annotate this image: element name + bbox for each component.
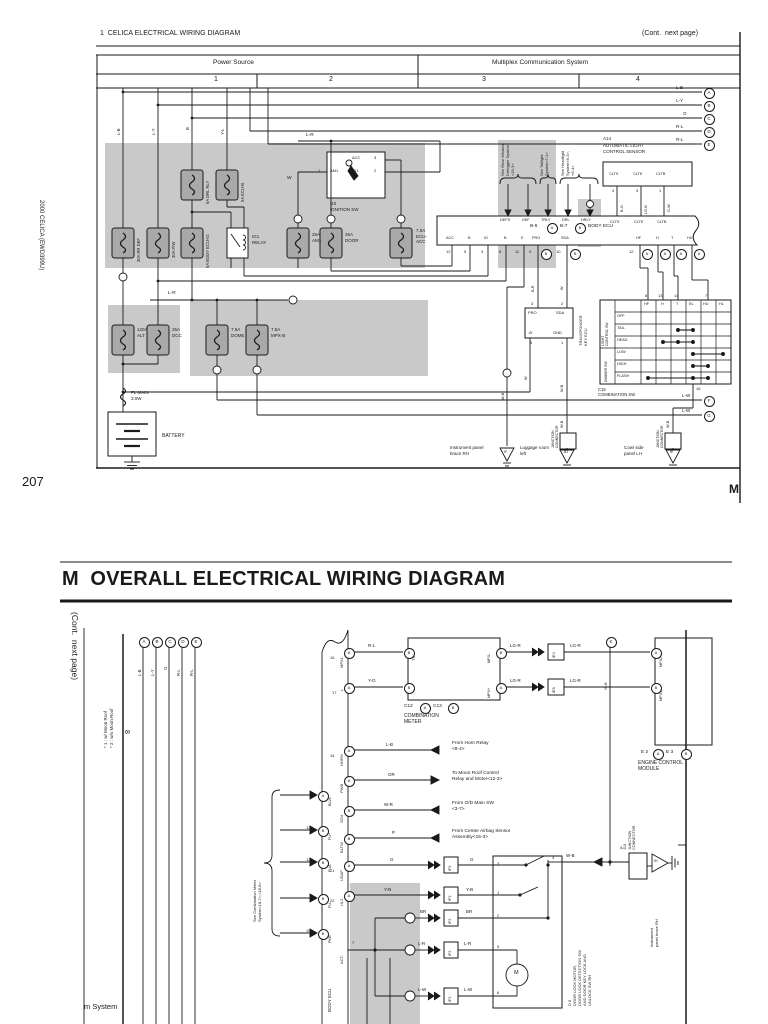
connector-letter: A <box>344 891 355 902</box>
pin: 2 <box>310 790 312 795</box>
margin-fragment: m System <box>84 1002 117 1011</box>
body-ecu-label: BODY ECU <box>327 989 333 1012</box>
see-note: See Combination Meter System<18-7>,<18-8… <box>252 880 262 922</box>
terminal: FU- <box>328 902 333 908</box>
connector-a: A <box>139 637 150 648</box>
ecm-label: ENGINE CONTROL MODULE <box>638 760 683 773</box>
wire-label: BR <box>466 909 472 915</box>
connector-letter: A <box>344 683 355 694</box>
junction-code: IF2 <box>448 896 453 902</box>
ground-label: Instrument panel brace RH <box>649 919 659 947</box>
terminal: PWB <box>339 784 344 793</box>
wire-label: R-L <box>189 669 194 676</box>
junction-label: J10 JUNCTION CONNECTOR <box>623 826 637 850</box>
terminal: MPX+ <box>487 688 492 698</box>
connector-e: E <box>191 637 202 648</box>
bottom-sheet-labels: (Cont. next page)* 1 : w/ Moon Roof * 2 … <box>0 0 768 1024</box>
cont-next-page: (Cont. next page) <box>69 612 80 680</box>
junction-code: IF2 <box>448 919 453 925</box>
connector-k: K <box>606 637 617 648</box>
wire-label: L-R <box>464 941 471 947</box>
pin: 2 <box>497 913 499 918</box>
connector-letter: B <box>496 648 507 659</box>
connector-d: D <box>178 637 189 648</box>
wire-label: P <box>392 830 395 836</box>
wire-label: L-W <box>418 987 426 993</box>
terminal: BLVL <box>328 797 333 806</box>
wire-label: W-R <box>384 802 393 808</box>
pin: 16 <box>330 655 334 660</box>
ecm-connector: E 2 <box>641 750 648 756</box>
see-note: From Horn Relay <8-4> <box>452 741 489 753</box>
terminal: FU+ <box>328 833 333 840</box>
terminal: PKB <box>328 935 333 943</box>
connector-letter: A <box>344 648 355 659</box>
junction-code: IF2 <box>448 997 453 1003</box>
scanned-wiring-diagram-page: 1 CELICA ELECTRICAL WIRING DIAGRAM (Cont… <box>0 0 768 1024</box>
motor-letter: M <box>514 970 519 977</box>
wire-label: LG-R <box>510 643 521 649</box>
pin: 12 <box>306 857 310 862</box>
junction-code: IE5 <box>552 687 557 693</box>
terminal: USAP <box>339 870 344 881</box>
pin: 6 <box>497 990 499 995</box>
wire-label: BR <box>420 909 426 915</box>
connector-letter: B <box>344 806 355 817</box>
junction-code: IF2 <box>448 951 453 957</box>
pin: 1 <box>497 890 499 895</box>
pin: 4 <box>552 855 554 860</box>
wire-label: L-B <box>386 742 393 748</box>
wire-label: OR <box>388 772 395 778</box>
wire-label: LG-R <box>570 643 581 649</box>
wire-label: LG-R <box>570 678 581 684</box>
wire-label: Y-B <box>466 887 473 893</box>
wire-label: R-L <box>368 643 375 649</box>
ecm-connector: , E 3 <box>662 750 673 756</box>
junction-code: IE4 <box>552 652 557 658</box>
connector-letter: A <box>344 861 355 872</box>
terminal: SO4 <box>339 815 344 823</box>
terminal: MPX2 <box>659 657 664 667</box>
connector-b: B <box>152 637 163 648</box>
connector-letter: A <box>496 683 507 694</box>
terminal: MPX1 <box>659 691 664 701</box>
wire-label: LG-R <box>510 678 521 684</box>
terminal: A <box>620 845 623 850</box>
wire-label: G <box>470 857 474 863</box>
wire-label: Y-G <box>368 678 376 684</box>
see-note: To Moon Roof Control Relay and Motor<12-… <box>452 771 502 783</box>
connector-letter: B <box>318 894 329 905</box>
pin: 3 <box>310 893 312 898</box>
wire-label: L-B <box>137 669 142 676</box>
pin: 17 <box>332 690 336 695</box>
pin: 19 <box>306 928 310 933</box>
connector-letter: B <box>318 858 329 869</box>
terminal: BLTW <box>339 842 344 853</box>
connector-letter: B <box>404 648 415 659</box>
connector-letter: A <box>318 791 329 802</box>
wire-label: L-W <box>464 987 472 993</box>
terminal: MPX1 <box>339 657 344 668</box>
pin: 12 <box>306 825 310 830</box>
connector-letter: B <box>448 703 459 714</box>
pin: 3 <box>497 861 499 866</box>
terminal: HORN <box>339 754 344 766</box>
wire-label: W-B <box>603 682 608 690</box>
pin: 5 <box>497 944 499 949</box>
connector-letter: B <box>404 683 415 694</box>
connector-letter: B <box>681 749 692 760</box>
connector-c: C <box>165 637 176 648</box>
footnote: * 1 : w/ Moon Roof * 2 : w/o Moon Roof <box>103 708 114 748</box>
meter-connector: , C13 <box>429 704 442 710</box>
see-note: From Center Airbag Sensor Assembly<15-3> <box>452 829 510 841</box>
connector-letter: A <box>344 776 355 787</box>
terminal: ACT- <box>339 955 344 964</box>
connector-letter: B <box>318 929 329 940</box>
terminal: MPX- <box>487 654 492 664</box>
door-lock-label: D 6 DOOR LOCK MOTOR, DOOR LOCK DETECTION… <box>567 950 592 1006</box>
wire-label: W-B <box>566 853 575 859</box>
see-note: From O/D Main SW <3-7> <box>452 801 494 813</box>
wire-label: R-L <box>176 669 181 676</box>
connector-letter: B <box>344 834 355 845</box>
wire-label: G <box>390 857 394 863</box>
terminal: UL2 <box>339 899 344 906</box>
pin: 7 <box>352 940 354 945</box>
zone-number: 8 <box>121 730 130 734</box>
terminal: FUA <box>328 864 333 872</box>
meter-connector: C12 <box>404 704 413 710</box>
wire-label: L-Y <box>150 669 155 676</box>
wire-label: Y-B <box>384 887 391 893</box>
ground-code: IH <box>654 859 658 863</box>
wire-label: O <box>163 667 168 670</box>
pin: 14 <box>330 753 334 758</box>
combination-meter-label: COMBINATION METER <box>404 713 439 726</box>
connector-letter: B <box>318 826 329 837</box>
wire-label: L-R <box>418 941 425 947</box>
junction-code: IF2 <box>448 866 453 872</box>
connector-letter: A <box>344 746 355 757</box>
